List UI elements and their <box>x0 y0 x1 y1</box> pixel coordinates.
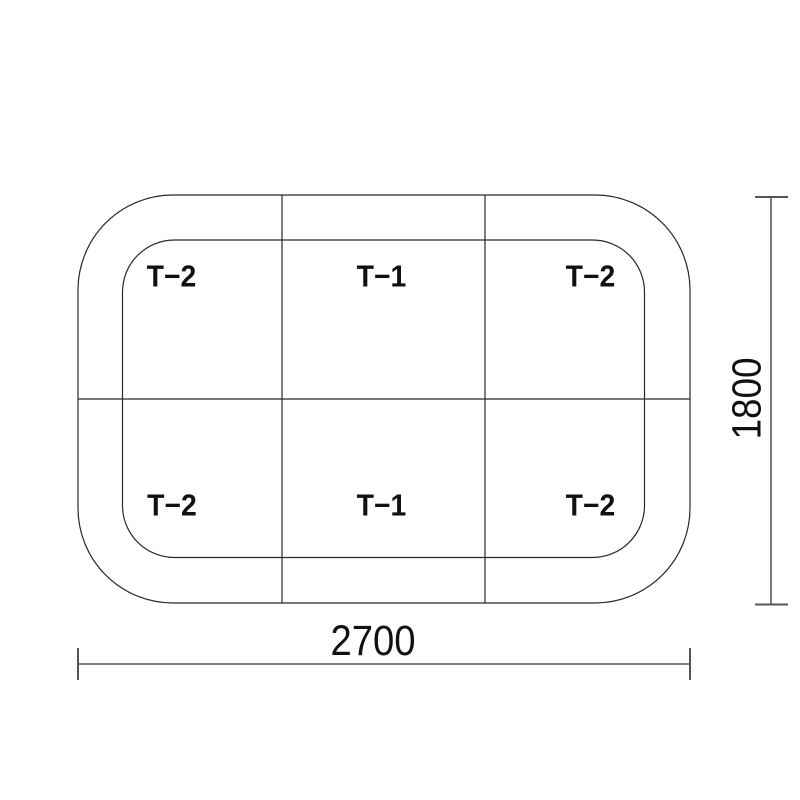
svg-text:1800: 1800 <box>725 357 770 439</box>
svg-text:2700: 2700 <box>330 616 415 664</box>
svg-text:T−2: T−2 <box>566 260 616 294</box>
svg-text:T−1: T−1 <box>357 489 407 523</box>
svg-text:T−2: T−2 <box>147 489 197 523</box>
svg-text:T−1: T−1 <box>357 260 407 294</box>
svg-text:T−2: T−2 <box>147 260 197 294</box>
svg-text:T−2: T−2 <box>566 489 616 523</box>
